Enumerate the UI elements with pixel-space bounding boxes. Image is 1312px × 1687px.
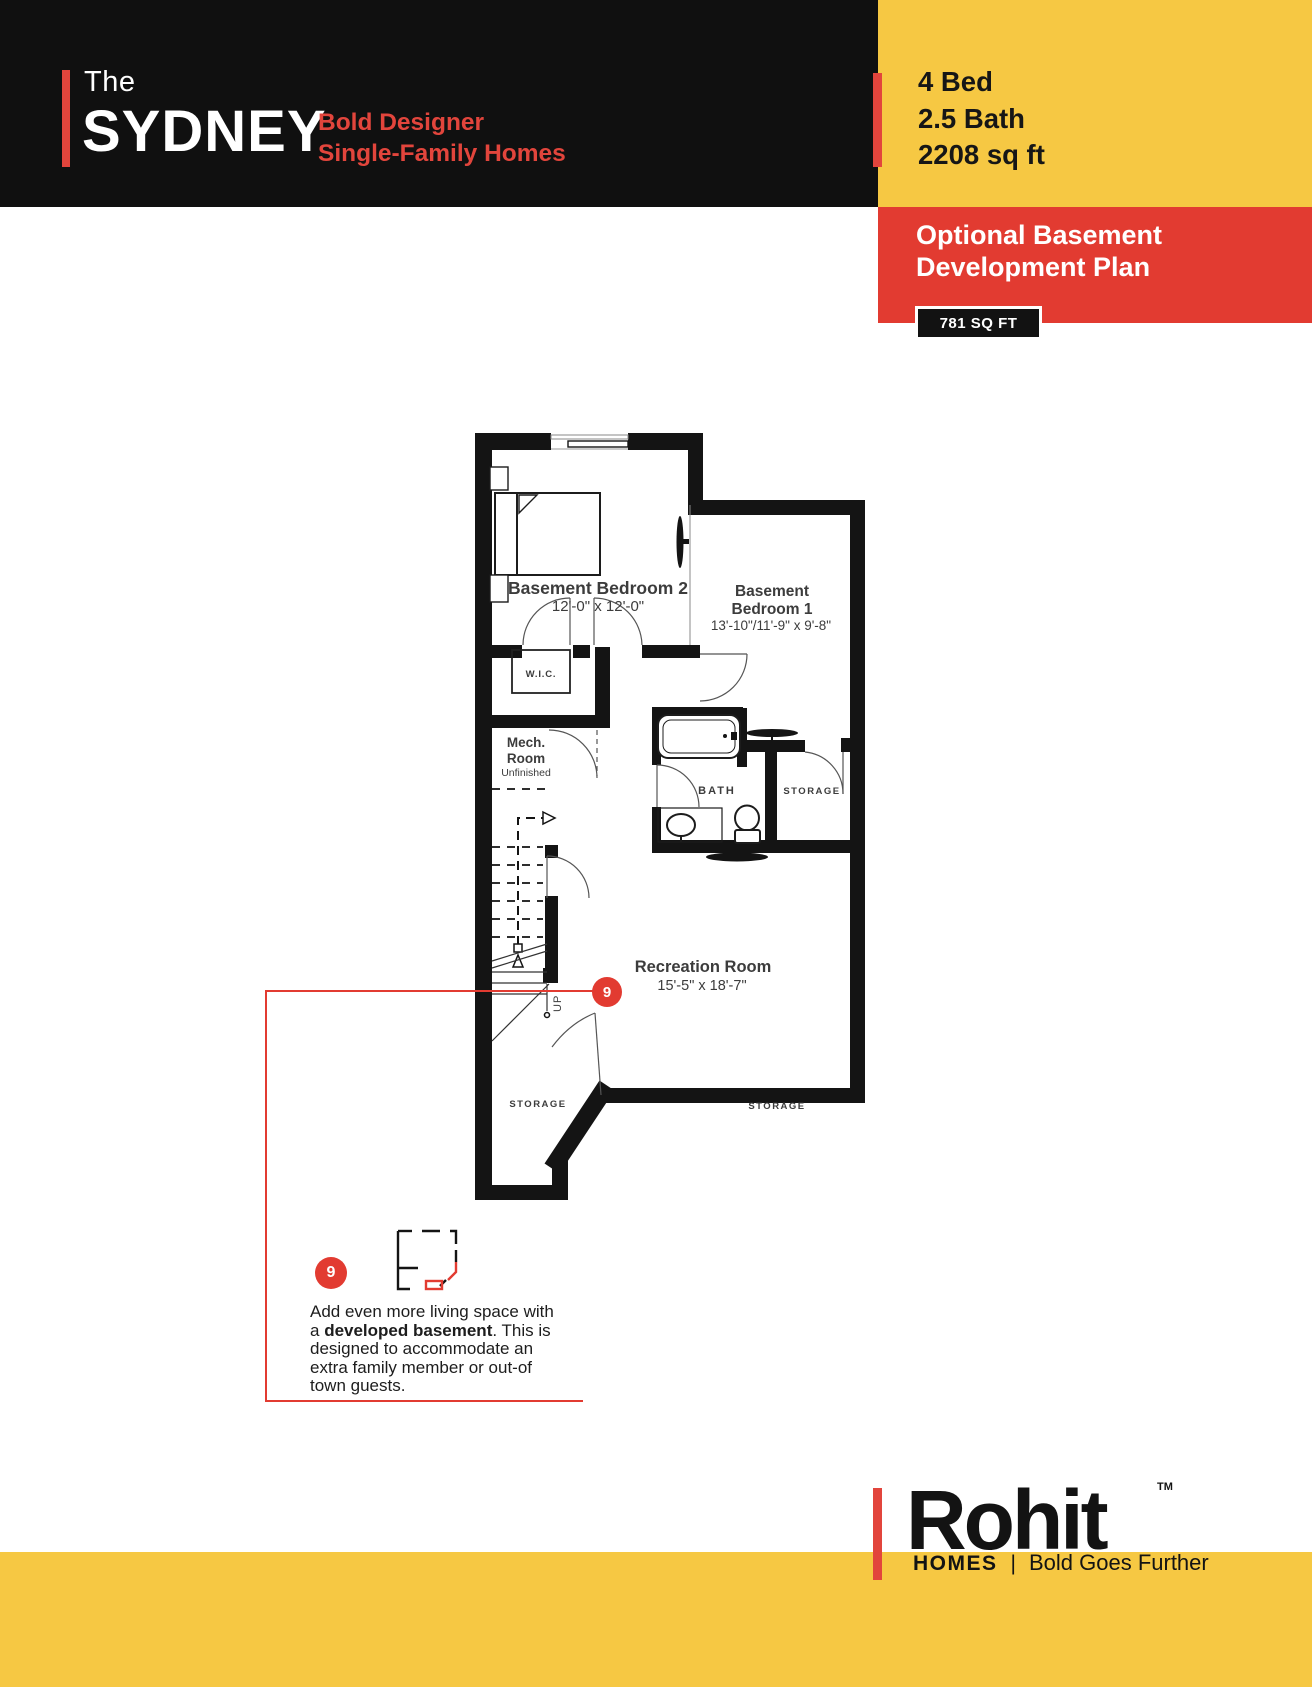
spec-area: 2208 sq ft: [918, 137, 1312, 174]
specs-block: 4 Bed 2.5 Bath 2208 sq ft: [878, 0, 1312, 207]
nightstand-icon: [490, 575, 508, 602]
stair-break-lines: [492, 944, 549, 1041]
callout-leader-vertical: [265, 990, 267, 1402]
recreation-label: Recreation Room: [635, 958, 772, 976]
toilet-icon: [735, 806, 760, 844]
plan-title: Optional Basement Development Plan: [916, 219, 1312, 283]
option-marker-callout: 9: [315, 1257, 347, 1289]
nightstand-icon: [490, 467, 508, 490]
storage-lowerright-label: STORAGE: [748, 1101, 805, 1112]
trademark-symbol: TM: [1157, 1481, 1173, 1493]
bedroom1-label-line1: Basement: [735, 583, 809, 600]
bathtub-icon: [658, 715, 740, 758]
bedroom1-dims: 13'-10"/11'-9" x 9'-8": [711, 618, 831, 633]
tagline-line-1: Bold Designer: [318, 108, 566, 139]
storage-lowerleft-label: STORAGE: [509, 1099, 566, 1110]
callout-leader-bottom: [265, 1400, 583, 1402]
stair-node-icon: [545, 1013, 550, 1018]
brand-homes-label: HOMES: [913, 1552, 998, 1576]
door-leaf-icon: [677, 516, 684, 568]
callout-text-bold: developed basement: [324, 1321, 492, 1340]
spec-beds: 4 Bed: [918, 64, 1312, 101]
flyer-page: The SYDNEY Bold Designer Single-Family H…: [0, 0, 1312, 1687]
up-label: UP: [552, 995, 564, 1012]
model-name: SYDNEY: [82, 98, 327, 165]
bed-icon: [495, 493, 600, 575]
bedroom2-dims: 12'-0" x 12'-0": [552, 598, 644, 615]
floorplan-drawing: UP Basement Bedroom 2 12'-0" x 12'-0" Ba…: [430, 395, 870, 1235]
header-block: The SYDNEY Bold Designer Single-Family H…: [0, 0, 878, 207]
mech-label-line2: Room: [507, 751, 545, 766]
bedroom2-label: Basement Bedroom 2: [508, 578, 688, 598]
callout-text: Add even more living space with a develo…: [310, 1303, 564, 1396]
mech-label-line3: Unfinished: [501, 767, 551, 779]
specs-list: 4 Bed 2.5 Bath 2208 sq ft: [918, 64, 1312, 174]
recreation-dims: 15'-5" x 18'-7": [657, 978, 746, 994]
brand-accent-bar: [873, 1488, 882, 1580]
plan-title-line-2: Development Plan: [916, 251, 1312, 283]
tagline-line-2: Single-Family Homes: [318, 139, 566, 170]
wic-label: W.I.C.: [526, 669, 557, 680]
window-symbol: [551, 435, 628, 449]
sink-icon: [667, 814, 695, 842]
sqft-badge: 781 SQ FT: [915, 306, 1042, 340]
model-prefix: The: [84, 66, 135, 99]
brand-divider: |: [1011, 1552, 1016, 1576]
brand-subline: HOMES | Bold Goes Further: [913, 1550, 1209, 1576]
brand-slogan: Bold Goes Further: [1029, 1550, 1209, 1576]
specs-accent-bar: [873, 73, 882, 167]
closet-rod-icon: [746, 729, 798, 741]
door-stop-icon: [683, 539, 689, 544]
callout-leader-top: [266, 990, 594, 992]
header-accent-bar: [62, 70, 70, 167]
model-tagline: Bold Designer Single-Family Homes: [318, 108, 566, 169]
mini-floorplan-icon: [388, 1226, 466, 1294]
option-marker-plan: 9: [592, 977, 622, 1007]
mech-label-line1: Mech.: [507, 735, 545, 750]
bedroom1-label-line2: Bedroom 1: [732, 601, 813, 618]
storage-upper-label: STORAGE: [783, 786, 840, 797]
spec-baths: 2.5 Bath: [918, 101, 1312, 138]
bath-label: BATH: [698, 785, 736, 797]
plan-title-line-1: Optional Basement: [916, 219, 1312, 251]
